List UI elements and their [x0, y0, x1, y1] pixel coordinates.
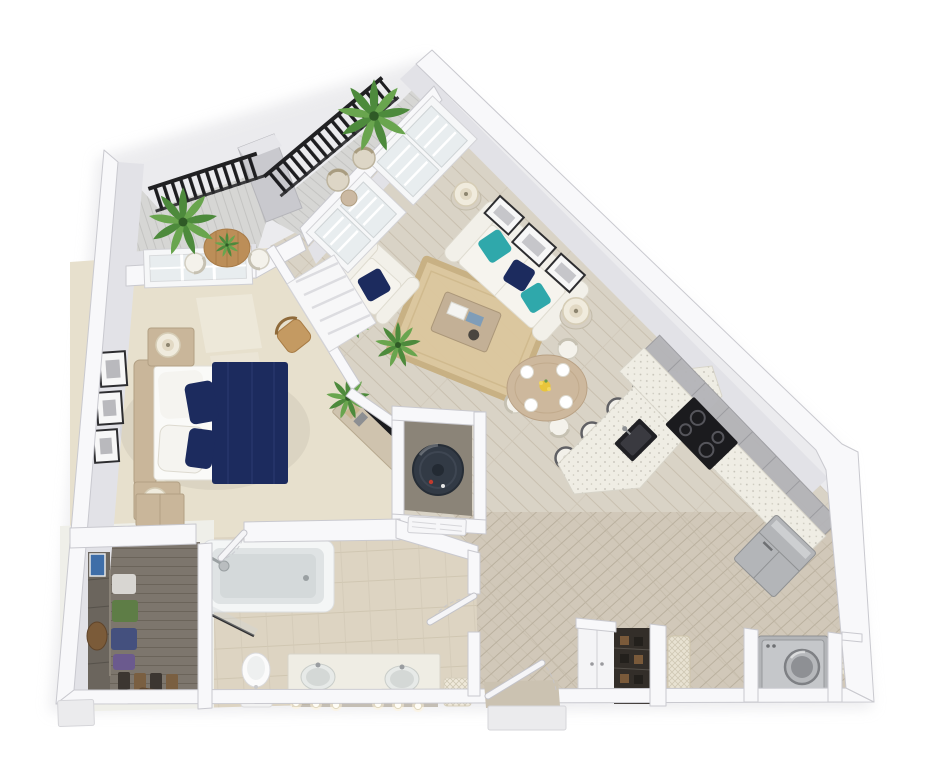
floor-plan [0, 0, 944, 768]
side-table [341, 190, 357, 206]
bed-accent-pillow [184, 427, 216, 469]
entry-step [488, 706, 566, 730]
wicker-chair [353, 147, 375, 169]
table-lamp [156, 333, 180, 357]
bed-headboard [134, 360, 156, 486]
wicker-chair [327, 169, 349, 191]
room-utility [404, 418, 472, 516]
place-setting [560, 396, 573, 409]
water-heater [413, 445, 463, 495]
place-setting [557, 364, 570, 377]
place-setting [525, 399, 538, 412]
dining-chair [558, 339, 578, 359]
place-setting [521, 366, 534, 379]
closet-art [90, 554, 105, 576]
bed-navy-duvet [212, 362, 288, 484]
exterior-step-left [58, 699, 95, 726]
utility-louver-door [408, 516, 467, 535]
tub-drain [303, 575, 309, 581]
bag [87, 622, 107, 650]
